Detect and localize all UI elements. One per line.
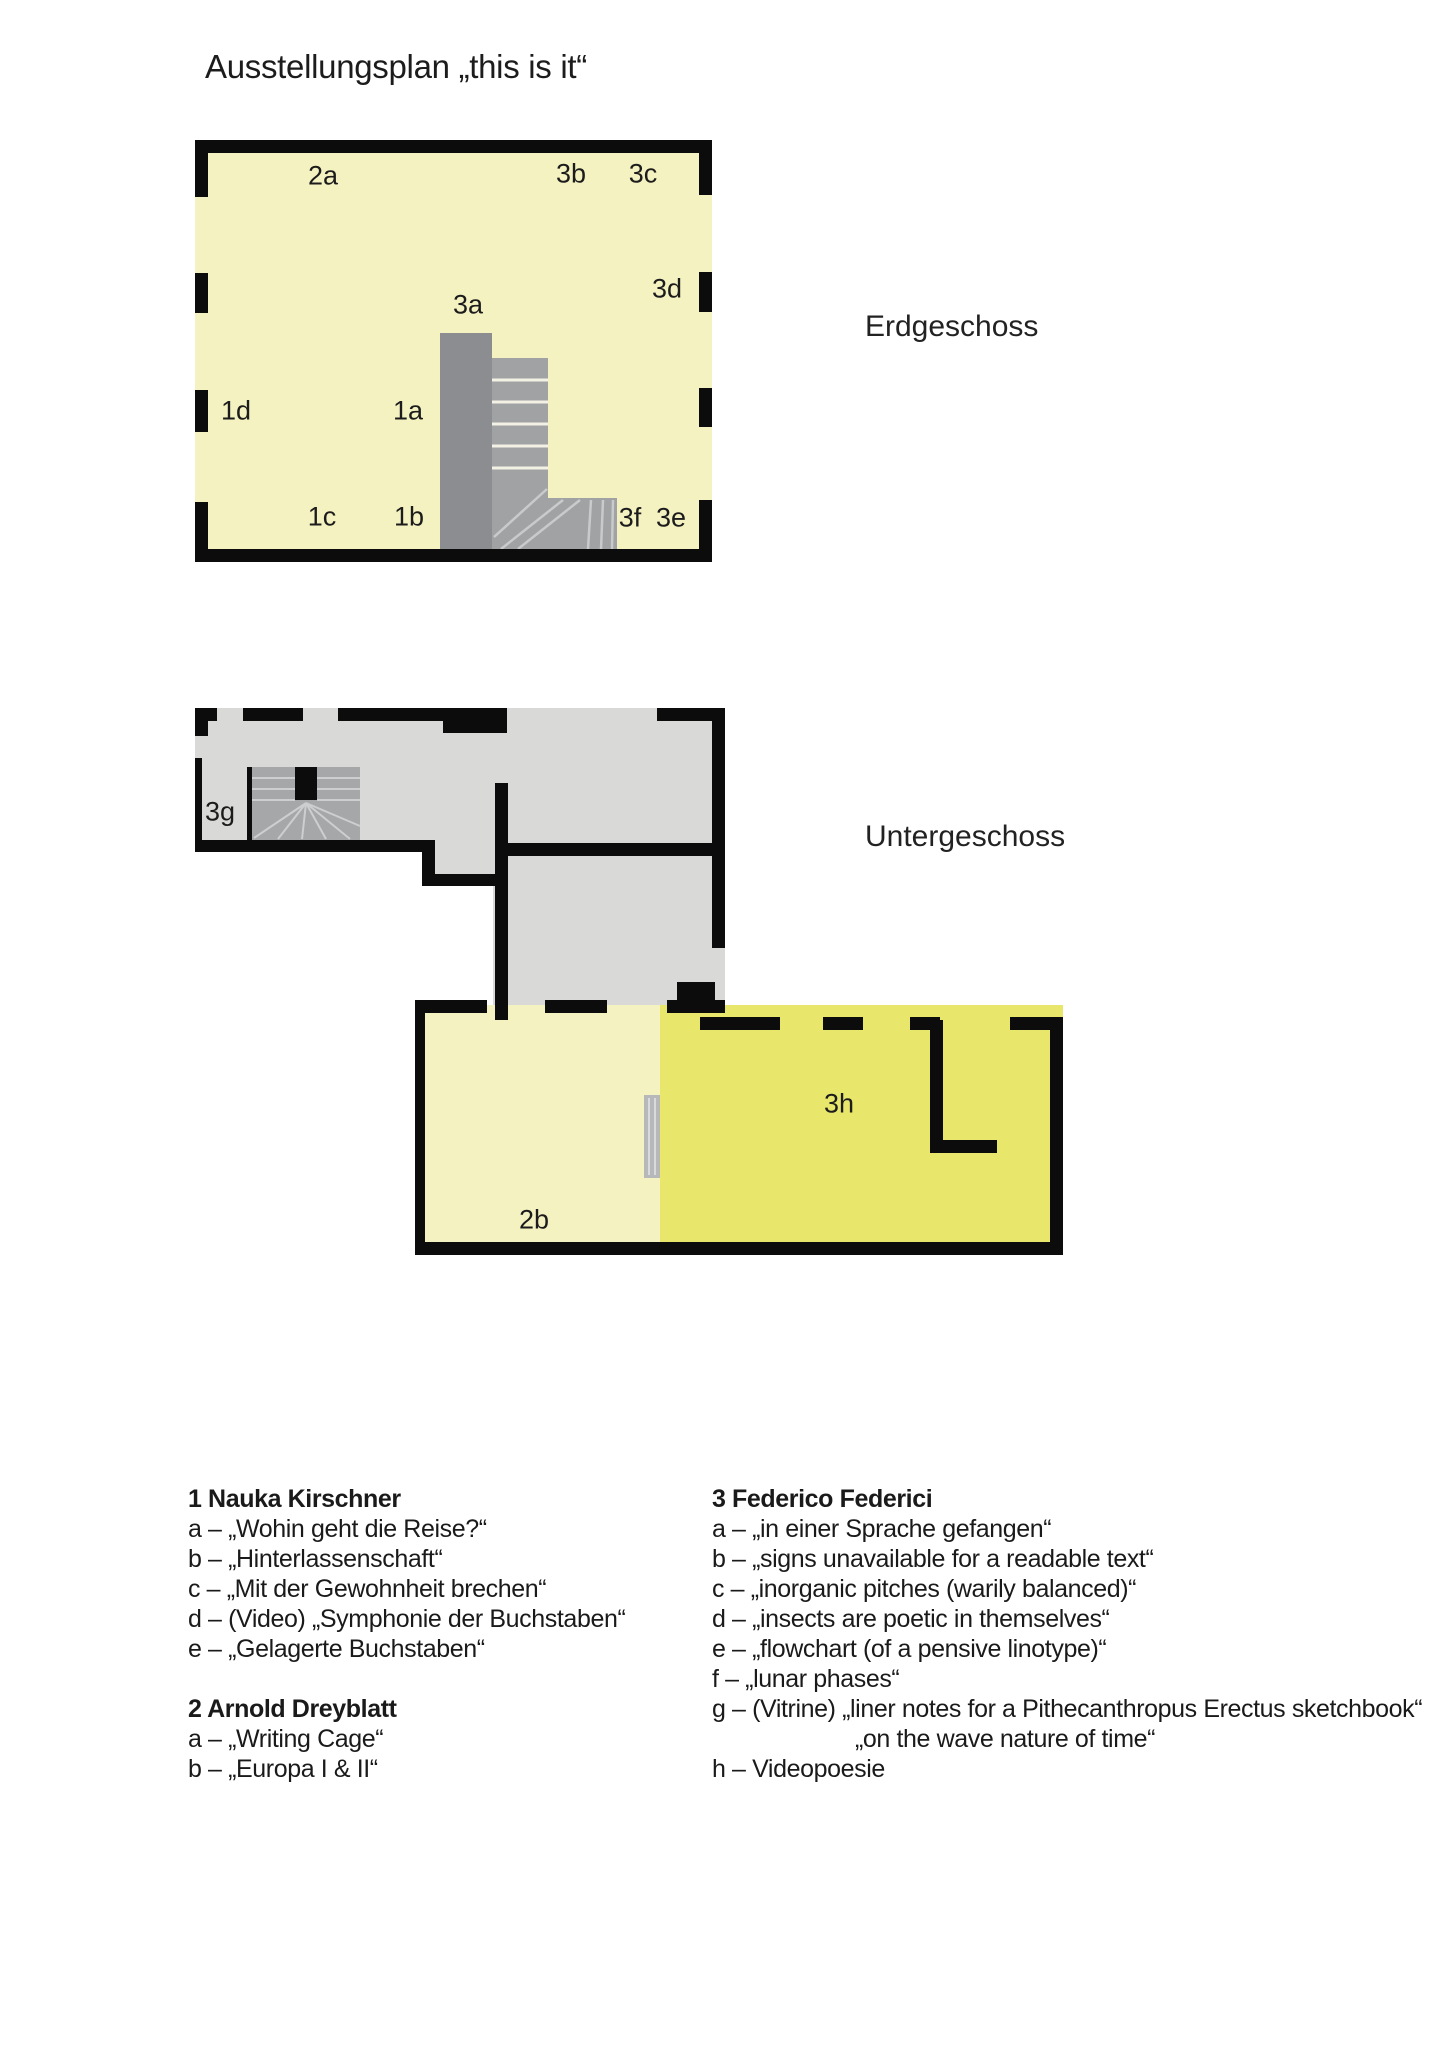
legend-item: e – „flowchart (of a pensive linotype)“ [712, 1634, 1422, 1664]
room-label-3e: 3e [656, 503, 686, 534]
legend-column-right: 3 Federico Federicia – „in einer Sprache… [712, 1484, 1422, 1814]
legend-item: „on the wave nature of time“ [855, 1724, 1422, 1754]
erdgeschoss-room-labels: 2a3b3c3a3d1d1a1c1b3f3e [195, 140, 712, 562]
untergeschoss-room-labels: 3g3h2b [195, 708, 1063, 1255]
legend-group: 3 Federico Federicia – „in einer Sprache… [712, 1484, 1422, 1784]
legend-item: c – „inorganic pitches (warily balanced)… [712, 1574, 1422, 1604]
legend-item: c – „Mit der Gewohnheit brechen“ [188, 1574, 625, 1604]
legend-item: a – „Wohin geht die Reise?“ [188, 1514, 625, 1544]
room-label-1c: 1c [308, 502, 337, 533]
room-label-3b: 3b [556, 159, 586, 190]
page-title: Ausstellungsplan „this is it“ [205, 48, 587, 86]
floor-title-untergeschoss: Untergeschoss [865, 820, 1065, 854]
room-label-3c: 3c [629, 159, 658, 190]
floor-title-erdgeschoss: Erdgeschoss [865, 310, 1038, 344]
legend-item: a – „Writing Cage“ [188, 1724, 625, 1754]
room-label-3f: 3f [619, 503, 642, 534]
legend-item: g – (Vitrine) „liner notes for a Pitheca… [712, 1694, 1422, 1724]
legend-item: a – „in einer Sprache gefangen“ [712, 1514, 1422, 1544]
legend-item: d – (Video) „Symphonie der Buchstaben“ [188, 1604, 625, 1634]
room-label-3d: 3d [652, 274, 682, 305]
floor-plan-untergeschoss: 3g3h2b [195, 708, 1063, 1255]
legend-column-left: 1 Nauka Kirschnera – „Wohin geht die Rei… [188, 1484, 625, 1814]
legend-group: 2 Arnold Dreyblatta – „Writing Cage“b – … [188, 1694, 625, 1784]
legend-item: b – „Europa I & II“ [188, 1754, 625, 1784]
legend-item: h – Videopoesie [712, 1754, 1422, 1784]
room-label-2a: 2a [308, 161, 338, 192]
legend-group-header: 1 Nauka Kirschner [188, 1484, 625, 1514]
legend-item: b – „Hinterlassenschaft“ [188, 1544, 625, 1574]
legend-item: d – „insects are poetic in themselves“ [712, 1604, 1422, 1634]
room-label-1d: 1d [221, 396, 251, 427]
room-label-1a: 1a [393, 396, 423, 427]
room-label-3a: 3a [453, 290, 483, 321]
room-label-1b: 1b [394, 502, 424, 533]
legend-group: 1 Nauka Kirschnera – „Wohin geht die Rei… [188, 1484, 625, 1664]
legend-item: e – „Gelagerte Buchstaben“ [188, 1634, 625, 1664]
room-label-3h: 3h [824, 1089, 854, 1120]
legend-group-header: 2 Arnold Dreyblatt [188, 1694, 625, 1724]
legend-group-header: 3 Federico Federici [712, 1484, 1422, 1514]
room-label-2b: 2b [519, 1205, 549, 1236]
floor-plan-erdgeschoss: 2a3b3c3a3d1d1a1c1b3f3e [195, 140, 712, 562]
room-label-3g: 3g [205, 797, 235, 828]
legend-item: b – „signs unavailable for a readable te… [712, 1544, 1422, 1574]
legend-item: f – „lunar phases“ [712, 1664, 1422, 1694]
